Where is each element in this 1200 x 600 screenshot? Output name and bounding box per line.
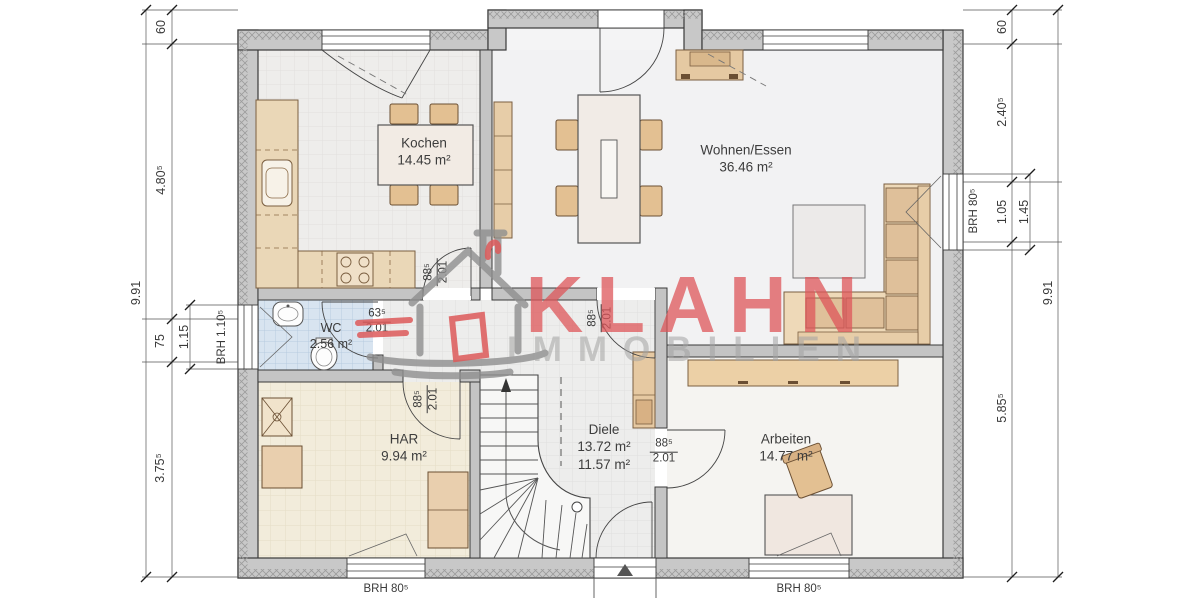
- room-area: 13.72 m²: [577, 438, 630, 455]
- room-area: 36.46 m²: [700, 159, 791, 176]
- room-label-har: HAR 9.94 m²: [381, 431, 427, 466]
- dim-left-b: 75: [153, 334, 167, 348]
- room-name: Kochen: [397, 135, 450, 152]
- room-label-arbeiten: Arbeiten 14.77 m²: [759, 431, 812, 466]
- dim-left-c: 3.75⁵: [153, 453, 167, 483]
- room-name: Wohnen/Essen: [700, 142, 791, 159]
- door-label-arbeiten: 88⁵ 2.01: [650, 438, 678, 467]
- floorplan-canvas: Kochen 14.45 m² Wohnen/Essen 36.46 m² WC…: [0, 0, 1200, 600]
- wc-sink-icon: [273, 302, 303, 326]
- brh-label-wc: BRH 1.10⁵: [216, 310, 228, 365]
- watermark-subtitle: IMMOBILIEN: [507, 330, 877, 370]
- brh-label-har: BRH 80⁵: [363, 583, 408, 595]
- room-label-diele: Diele 13.72 m² 11.57 m²: [577, 421, 630, 473]
- brh-label-wohnen: BRH 80⁵: [968, 188, 980, 233]
- har-cabinet: [262, 446, 302, 488]
- room-label-kochen: Kochen 14.45 m²: [397, 135, 450, 170]
- room-area: 14.77 m²: [759, 448, 812, 465]
- dim-right-c: 5.85⁵: [995, 393, 1009, 423]
- room-label-wohnen: Wohnen/Essen 36.46 m²: [700, 142, 791, 177]
- dim-right-b: 1.05: [995, 200, 1009, 224]
- door-height: 2.01: [650, 453, 678, 467]
- door-label-har: 88⁵ 2.01: [413, 385, 442, 413]
- room-name: HAR: [381, 431, 427, 448]
- dim-right-a: 2.40⁵: [995, 97, 1009, 127]
- room-name: Diele: [577, 421, 630, 438]
- room-area-2: 11.57 m²: [577, 456, 630, 473]
- door-width: 88⁵: [413, 385, 428, 413]
- desk: [765, 495, 852, 555]
- dim-right-total: 9.91: [1041, 281, 1055, 305]
- dim-left-top: 60: [154, 20, 168, 34]
- dim-left-a: 4.80⁵: [154, 165, 168, 195]
- dim-left-total: 9.91: [129, 281, 143, 305]
- room-name: Arbeiten: [759, 431, 812, 448]
- room-area: 9.94 m²: [381, 448, 427, 465]
- door-height: 2.01: [428, 385, 442, 413]
- room-area: 14.45 m²: [397, 152, 450, 169]
- har-tall-cabinet: [428, 472, 468, 548]
- dim-right-window: 1.45: [1017, 200, 1031, 224]
- kitchen-sink-icon: [262, 160, 292, 206]
- washing-machine-icon: [262, 398, 292, 436]
- dim-right-top: 60: [995, 20, 1009, 34]
- dim-left-window: 1.15: [177, 325, 191, 349]
- brh-label-arbeiten: BRH 80⁵: [776, 583, 821, 595]
- door-width: 88⁵: [650, 438, 678, 453]
